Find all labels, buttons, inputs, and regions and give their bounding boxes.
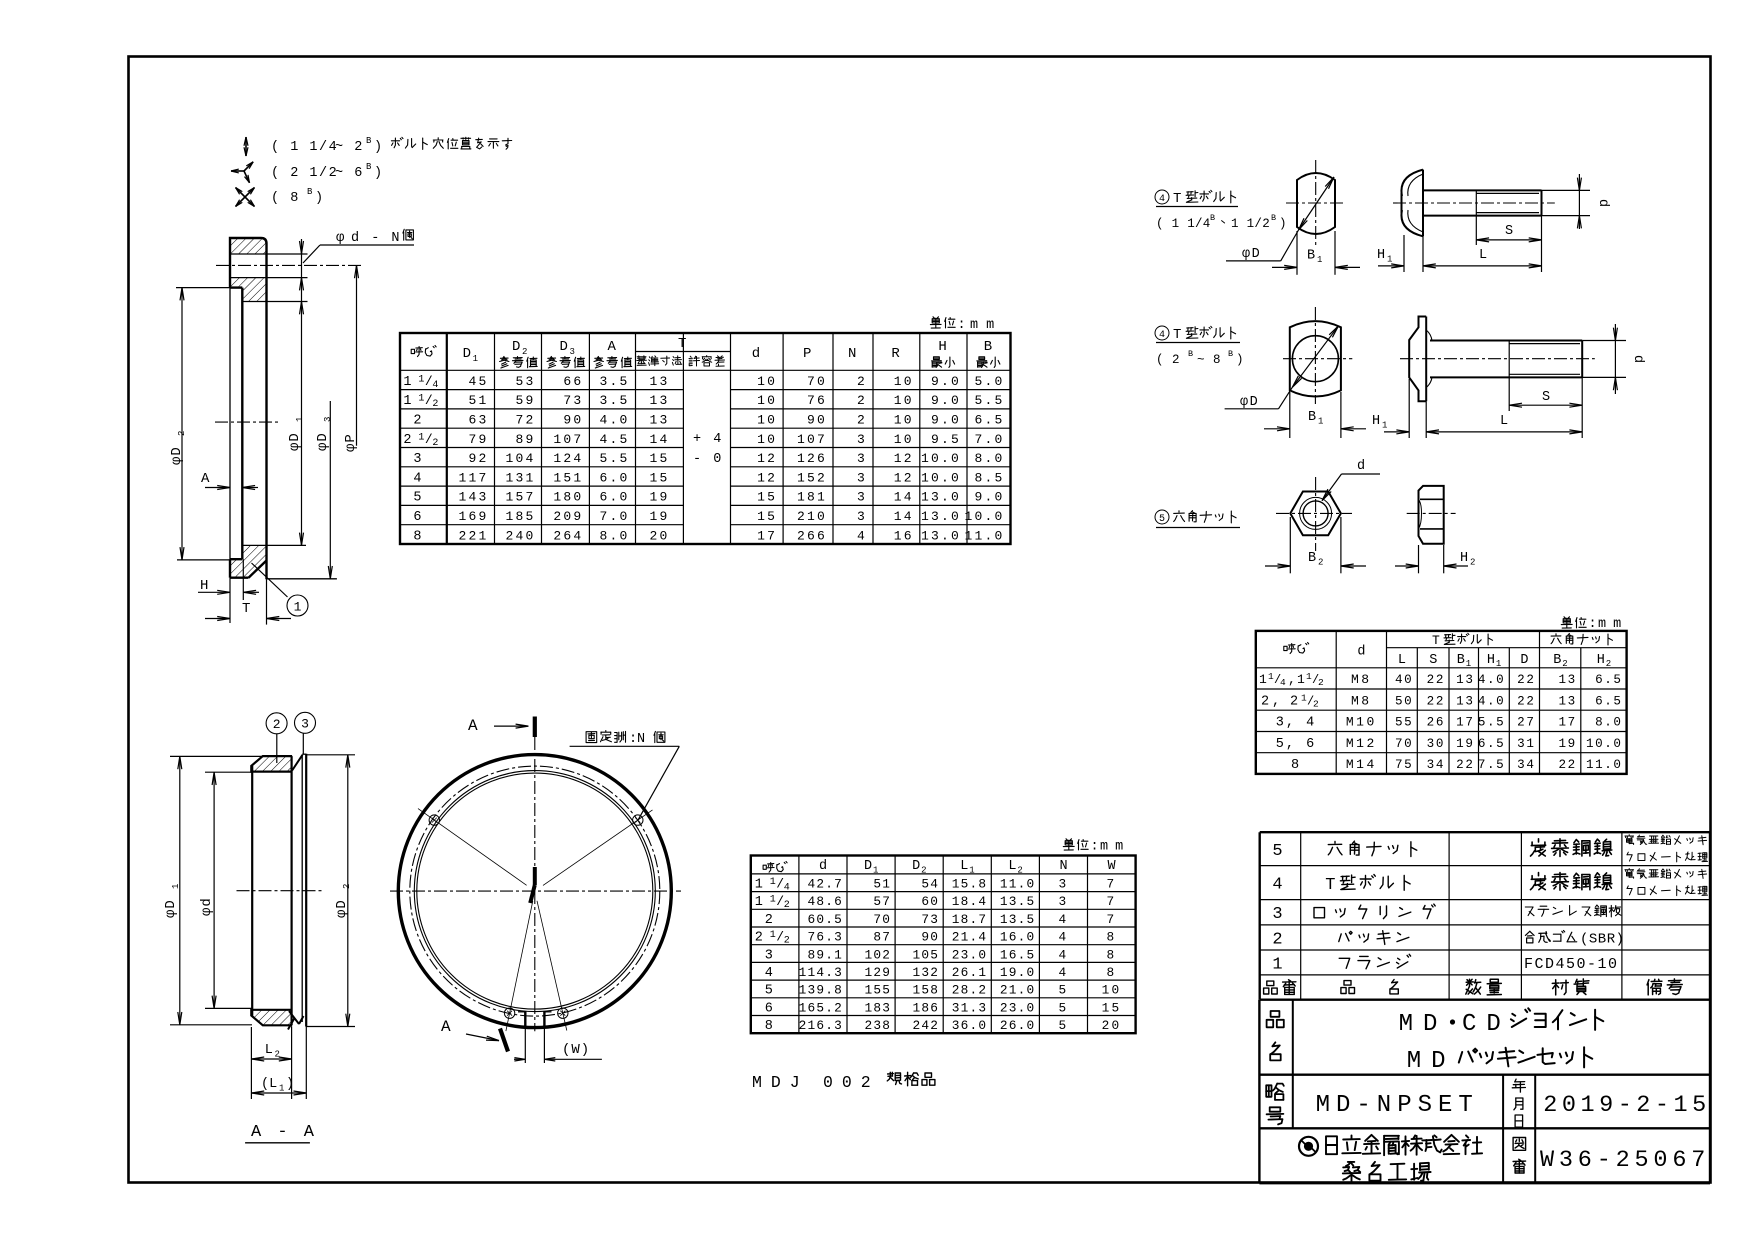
- svg-text:50: 50: [1395, 694, 1413, 708]
- svg-text:L: L: [1479, 248, 1487, 263]
- svg-text:5: 5: [1059, 1018, 1069, 1033]
- svg-text:N: N: [848, 346, 856, 362]
- svg-text:3: 3: [1272, 905, 1282, 924]
- svg-text:2: 2: [1606, 659, 1611, 669]
- svg-text:5: 5: [1059, 983, 1069, 998]
- svg-text:4: 4: [1159, 194, 1165, 205]
- svg-text:2: 2: [784, 936, 790, 947]
- svg-text:( 1 1/4: ( 1 1/4: [271, 140, 338, 155]
- svg-text:9.0: 9.0: [931, 413, 961, 428]
- svg-text:22: 22: [1517, 673, 1535, 687]
- svg-text:S: S: [1429, 653, 1437, 668]
- svg-text:19.0: 19.0: [1000, 965, 1036, 980]
- svg-text:9.5: 9.5: [931, 432, 961, 447]
- svg-text:S: S: [1542, 390, 1550, 405]
- svg-text:60.5: 60.5: [807, 912, 843, 927]
- svg-text:3: 3: [323, 417, 333, 422]
- svg-text:70: 70: [807, 374, 827, 389]
- svg-text:2: 2: [522, 347, 527, 357]
- svg-text:157: 157: [505, 490, 535, 505]
- svg-text:40: 40: [1395, 673, 1413, 687]
- svg-text:~ 2: ~ 2: [335, 140, 364, 155]
- svg-text:8: 8: [1107, 930, 1117, 945]
- svg-text:): ): [286, 1077, 294, 1092]
- svg-text:1: 1: [1318, 417, 1323, 427]
- svg-text:1: 1: [873, 866, 878, 876]
- svg-text:26.0: 26.0: [1000, 1018, 1036, 1033]
- svg-text:13.0: 13.0: [921, 528, 961, 543]
- svg-text:B: B: [366, 136, 372, 146]
- svg-text:): ): [1279, 217, 1287, 231]
- svg-text:): ): [315, 191, 323, 206]
- svg-text:26.1: 26.1: [952, 965, 988, 980]
- svg-text:73: 73: [921, 912, 939, 927]
- svg-text:10: 10: [894, 374, 914, 389]
- svg-text:( 2: ( 2: [1156, 353, 1180, 367]
- svg-text:4.0: 4.0: [1478, 694, 1505, 708]
- svg-text:H: H: [1460, 551, 1468, 566]
- svg-text:7.5: 7.5: [1478, 758, 1505, 772]
- svg-text:27: 27: [1517, 716, 1535, 730]
- svg-text:17: 17: [1558, 716, 1576, 730]
- svg-text:B: B: [307, 187, 313, 197]
- svg-text:8: 8: [1107, 947, 1117, 962]
- svg-text:7.0: 7.0: [599, 509, 629, 524]
- svg-text:7.0: 7.0: [974, 432, 1004, 447]
- svg-text:117: 117: [458, 470, 488, 485]
- svg-text:2: 2: [432, 438, 438, 449]
- svg-text:6: 6: [765, 1001, 777, 1016]
- svg-text:20: 20: [649, 528, 669, 543]
- svg-text:D: D: [1520, 653, 1528, 668]
- svg-text:B: B: [1228, 349, 1233, 359]
- svg-text:1: 1: [418, 374, 424, 385]
- svg-text:210: 210: [797, 509, 827, 524]
- svg-text:φ: φ: [336, 230, 345, 246]
- svg-text:92: 92: [468, 451, 488, 466]
- svg-text:19: 19: [1558, 737, 1576, 751]
- svg-text:221: 221: [458, 528, 488, 543]
- svg-text:φd: φd: [199, 897, 215, 916]
- svg-text:4: 4: [413, 471, 425, 486]
- svg-text:180: 180: [553, 490, 583, 505]
- svg-text:12: 12: [757, 451, 777, 466]
- svg-text:2: 2: [403, 433, 414, 448]
- svg-text:T: T: [1173, 327, 1181, 343]
- svg-text:6.5: 6.5: [974, 413, 1004, 428]
- svg-text:216.3: 216.3: [799, 1018, 843, 1033]
- svg-text:10.0: 10.0: [1586, 737, 1623, 751]
- svg-text:8: 8: [1291, 758, 1301, 773]
- svg-text:2: 2: [273, 717, 281, 732]
- svg-text:4: 4: [432, 380, 438, 391]
- svg-text:75: 75: [1395, 758, 1413, 772]
- svg-text:7: 7: [1107, 894, 1117, 909]
- svg-text:H: H: [1377, 248, 1385, 263]
- svg-text:19: 19: [649, 490, 669, 505]
- svg-text:H: H: [1597, 653, 1605, 668]
- svg-text:242: 242: [913, 1018, 940, 1033]
- svg-text:2: 2: [1017, 866, 1022, 876]
- svg-text:79: 79: [468, 432, 488, 447]
- svg-text:102: 102: [864, 947, 891, 962]
- svg-text:13: 13: [1456, 694, 1474, 708]
- svg-text:W: W: [1108, 859, 1117, 874]
- svg-text:3: 3: [857, 509, 867, 524]
- svg-text:34: 34: [1517, 758, 1535, 772]
- svg-text:d: d: [1630, 355, 1645, 363]
- svg-text:B: B: [1271, 213, 1276, 223]
- svg-text:d: d: [1595, 199, 1610, 207]
- svg-text:11.0: 11.0: [964, 528, 1004, 543]
- svg-text:6.0: 6.0: [599, 490, 629, 505]
- svg-text:T: T: [1432, 633, 1440, 648]
- svg-text:D: D: [560, 339, 568, 355]
- svg-text:30: 30: [1427, 737, 1445, 751]
- svg-text:2: 2: [342, 884, 352, 889]
- svg-text:L: L: [1398, 653, 1406, 668]
- svg-text:28.2: 28.2: [952, 983, 988, 998]
- svg-text:D: D: [864, 859, 872, 874]
- svg-text:23.0: 23.0: [952, 947, 988, 962]
- svg-text:31.3: 31.3: [952, 1000, 988, 1015]
- svg-text:10: 10: [757, 432, 777, 447]
- svg-text:89: 89: [515, 432, 535, 447]
- svg-text:3: 3: [857, 451, 867, 466]
- svg-text:3: 3: [301, 717, 309, 732]
- svg-text:W36-25067: W36-25067: [1540, 1147, 1710, 1174]
- svg-text:): ): [1236, 353, 1244, 367]
- svg-text:5: 5: [1059, 1000, 1069, 1015]
- svg-text:mm: mm: [1100, 840, 1130, 855]
- svg-text:4: 4: [1280, 677, 1286, 688]
- svg-text:4.0: 4.0: [599, 413, 629, 428]
- svg-text:8.0: 8.0: [1595, 716, 1622, 730]
- svg-text:13.5: 13.5: [1000, 894, 1036, 909]
- svg-text:240: 240: [505, 528, 535, 543]
- svg-text:8.0: 8.0: [974, 451, 1004, 466]
- svg-text:2: 2: [857, 374, 867, 389]
- svg-text:76.3: 76.3: [807, 930, 843, 945]
- svg-text:T: T: [242, 601, 250, 617]
- svg-text:132: 132: [913, 965, 940, 980]
- svg-text:14: 14: [894, 490, 914, 505]
- svg-text:20: 20: [1102, 1018, 1122, 1033]
- svg-text:2: 2: [1261, 694, 1269, 709]
- svg-text:3: 3: [857, 470, 867, 485]
- svg-text:66: 66: [563, 374, 583, 389]
- svg-text:~ 6: ~ 6: [335, 166, 364, 181]
- svg-text:5.5: 5.5: [974, 393, 1004, 408]
- svg-text:16.0: 16.0: [1000, 930, 1036, 945]
- svg-text:51: 51: [468, 393, 488, 408]
- svg-text:155: 155: [864, 983, 891, 998]
- svg-text:L: L: [960, 859, 968, 874]
- svg-text:107: 107: [553, 432, 583, 447]
- svg-text:10: 10: [894, 432, 914, 447]
- svg-text:M12: M12: [1346, 736, 1377, 751]
- svg-text:10.0: 10.0: [921, 451, 961, 466]
- svg-text:4: 4: [784, 883, 790, 894]
- svg-text:φP: φP: [343, 433, 359, 452]
- svg-text:3: 3: [413, 452, 425, 467]
- svg-text:( 2 1/2: ( 2 1/2: [271, 166, 338, 181]
- svg-text:3: 3: [1059, 877, 1069, 892]
- svg-text:T: T: [678, 336, 686, 352]
- svg-text:A: A: [201, 471, 210, 487]
- svg-text:1: 1: [403, 375, 414, 390]
- svg-text:3: 3: [857, 432, 867, 447]
- svg-text:8.0: 8.0: [599, 528, 629, 543]
- svg-text:22: 22: [1517, 694, 1535, 708]
- svg-text:209: 209: [553, 509, 583, 524]
- svg-text:1: 1: [403, 394, 414, 409]
- svg-text:d: d: [819, 859, 827, 874]
- svg-text:87: 87: [873, 930, 891, 945]
- svg-text:(SBR): (SBR): [1580, 932, 1625, 948]
- svg-text:70: 70: [1395, 737, 1413, 751]
- svg-text:2: 2: [432, 399, 438, 410]
- svg-text:1: 1: [770, 930, 776, 941]
- svg-text:1: 1: [171, 884, 181, 889]
- svg-text:T: T: [1173, 191, 1181, 207]
- svg-text:B: B: [1307, 249, 1315, 264]
- svg-text:51: 51: [873, 877, 891, 892]
- svg-text:1: 1: [1272, 956, 1282, 975]
- svg-text:90: 90: [921, 930, 939, 945]
- svg-text:MD: MD: [1399, 1011, 1448, 1038]
- svg-text:126: 126: [797, 451, 827, 466]
- svg-text:8: 8: [413, 529, 425, 544]
- svg-text:D: D: [912, 859, 920, 874]
- svg-text:15: 15: [1102, 1000, 1122, 1015]
- svg-text:14: 14: [649, 432, 669, 447]
- svg-text:1: 1: [418, 432, 424, 443]
- svg-text:φD: φD: [315, 432, 331, 451]
- svg-text:54: 54: [921, 877, 939, 892]
- svg-text:FCD450-10: FCD450-10: [1524, 956, 1619, 973]
- svg-text:2: 2: [413, 414, 425, 429]
- svg-text:36.0: 36.0: [952, 1018, 988, 1033]
- svg-text:N: N: [1060, 859, 1068, 874]
- svg-text:1: 1: [473, 354, 478, 364]
- svg-text:M8: M8: [1351, 672, 1372, 687]
- svg-text:mm: mm: [970, 318, 1002, 333]
- svg-text:22: 22: [1456, 758, 1474, 772]
- svg-text:φD: φD: [334, 899, 350, 918]
- svg-text::: :: [958, 318, 966, 333]
- svg-text:72: 72: [515, 413, 535, 428]
- svg-text:10: 10: [757, 393, 777, 408]
- svg-text:1: 1: [1297, 672, 1305, 687]
- svg-text:158: 158: [913, 983, 940, 998]
- svg-text:31: 31: [1517, 737, 1535, 751]
- svg-text:B: B: [1553, 653, 1561, 668]
- svg-text:3.5: 3.5: [599, 374, 629, 389]
- svg-text:2019-2-15: 2019-2-15: [1543, 1092, 1710, 1119]
- svg-text:16.5: 16.5: [1000, 947, 1036, 962]
- svg-text:1: 1: [1496, 659, 1501, 669]
- svg-text:22: 22: [1427, 673, 1445, 687]
- svg-text:8: 8: [765, 1019, 777, 1034]
- svg-text:21.0: 21.0: [1000, 983, 1036, 998]
- svg-text:2: 2: [1318, 677, 1324, 688]
- svg-text:11.0: 11.0: [1000, 877, 1036, 892]
- svg-text:152: 152: [797, 470, 827, 485]
- svg-text:(L: (L: [261, 1077, 277, 1092]
- svg-text:8: 8: [1107, 965, 1117, 980]
- svg-text:15: 15: [757, 509, 777, 524]
- svg-text:A: A: [608, 339, 617, 355]
- svg-text:59: 59: [515, 393, 535, 408]
- svg-text:21.4: 21.4: [952, 930, 988, 945]
- svg-text:A: A: [468, 717, 478, 735]
- svg-text:12: 12: [757, 470, 777, 485]
- svg-text:d: d: [1357, 645, 1365, 660]
- svg-text:4: 4: [1059, 947, 1069, 962]
- svg-text:23.0: 23.0: [1000, 1000, 1036, 1015]
- svg-text:10: 10: [894, 413, 914, 428]
- svg-text:H: H: [200, 578, 208, 594]
- svg-text:4.0: 4.0: [1478, 673, 1505, 687]
- svg-text:1: 1: [1259, 672, 1267, 687]
- svg-text:22: 22: [1558, 758, 1576, 772]
- svg-text:15: 15: [649, 451, 669, 466]
- svg-text:4: 4: [1059, 930, 1069, 945]
- svg-text:D: D: [512, 339, 520, 355]
- svg-text:1: 1: [770, 877, 776, 888]
- svg-text:34: 34: [1427, 758, 1445, 772]
- svg-text:90: 90: [807, 413, 827, 428]
- svg-text:φD: φD: [1240, 395, 1259, 410]
- svg-text:H: H: [1372, 414, 1380, 429]
- svg-text:5: 5: [1272, 842, 1282, 861]
- svg-text:1: 1: [1382, 421, 1387, 431]
- svg-text:CD: CD: [1462, 1011, 1511, 1038]
- svg-text:76: 76: [807, 393, 827, 408]
- svg-text:B: B: [984, 339, 992, 355]
- svg-text:- 0: - 0: [693, 452, 723, 467]
- svg-text:4: 4: [1272, 876, 1282, 895]
- svg-text:2: 2: [1470, 558, 1475, 568]
- svg-text:5, 6: 5, 6: [1276, 737, 1316, 752]
- svg-text:169: 169: [458, 509, 488, 524]
- svg-text:B: B: [1308, 410, 1316, 425]
- svg-text:3: 3: [857, 490, 867, 505]
- svg-text:φD: φD: [1242, 247, 1261, 262]
- svg-text:5.5: 5.5: [1478, 716, 1505, 730]
- svg-text:45: 45: [468, 374, 488, 389]
- svg-text:18.7: 18.7: [952, 912, 988, 927]
- svg-text:151: 151: [553, 470, 583, 485]
- svg-text:H: H: [938, 339, 946, 355]
- svg-text:d: d: [752, 346, 760, 362]
- svg-text:2: 2: [765, 913, 777, 928]
- svg-text:9.0: 9.0: [931, 374, 961, 389]
- svg-text:13: 13: [1558, 673, 1576, 687]
- svg-text:MD-NPSET: MD-NPSET: [1316, 1092, 1479, 1119]
- svg-text:10: 10: [757, 374, 777, 389]
- svg-text:T: T: [1325, 876, 1335, 895]
- svg-text:10: 10: [1102, 983, 1122, 998]
- svg-text:22: 22: [1427, 694, 1445, 708]
- svg-text:2: 2: [1318, 558, 1323, 568]
- svg-text:L: L: [1500, 414, 1508, 429]
- svg-text:10: 10: [757, 413, 777, 428]
- svg-text:55: 55: [1395, 716, 1413, 730]
- svg-text:7: 7: [1107, 877, 1117, 892]
- svg-text:9.0: 9.0: [931, 393, 961, 408]
- svg-text:6.5: 6.5: [1595, 673, 1622, 687]
- svg-text:264: 264: [553, 528, 583, 543]
- svg-text:12: 12: [894, 451, 914, 466]
- svg-text:1: 1: [1466, 659, 1471, 669]
- svg-text:131: 131: [505, 470, 535, 485]
- svg-text:( 8: ( 8: [271, 191, 300, 206]
- svg-text:+ 4: + 4: [693, 432, 723, 447]
- svg-text:13: 13: [649, 393, 669, 408]
- svg-text:105: 105: [913, 947, 940, 962]
- svg-text:1: 1: [770, 895, 776, 906]
- svg-text:5: 5: [765, 984, 777, 999]
- svg-text:19: 19: [649, 509, 669, 524]
- svg-text:M10: M10: [1346, 715, 1377, 730]
- svg-text:2: 2: [275, 1050, 280, 1060]
- svg-text:13: 13: [649, 374, 669, 389]
- svg-text:129: 129: [864, 965, 891, 980]
- svg-text:6.5: 6.5: [1478, 737, 1505, 751]
- svg-text:70: 70: [873, 912, 891, 927]
- svg-text:2: 2: [1272, 931, 1282, 950]
- svg-text:4: 4: [1159, 330, 1165, 341]
- svg-text:19: 19: [1456, 737, 1474, 751]
- svg-text:266: 266: [797, 528, 827, 543]
- svg-text:1: 1: [294, 600, 302, 615]
- svg-text:002: 002: [823, 1073, 880, 1092]
- svg-text:H: H: [1487, 653, 1495, 668]
- svg-text:5.5: 5.5: [599, 451, 629, 466]
- svg-text:13.0: 13.0: [921, 490, 961, 505]
- svg-text:B: B: [1457, 653, 1465, 668]
- svg-text:MDJ: MDJ: [752, 1073, 809, 1092]
- svg-text:57: 57: [873, 894, 891, 909]
- svg-text:B: B: [366, 162, 372, 172]
- svg-text:12: 12: [894, 470, 914, 485]
- svg-text:13.5: 13.5: [1000, 912, 1036, 927]
- svg-text:φD: φD: [287, 432, 303, 451]
- svg-text:124: 124: [553, 451, 583, 466]
- svg-text:2: 2: [1562, 659, 1567, 669]
- svg-text:4: 4: [1059, 912, 1069, 927]
- svg-text:B: B: [1210, 213, 1215, 223]
- svg-text:8.5: 8.5: [974, 470, 1004, 485]
- svg-text:15: 15: [757, 490, 777, 505]
- svg-text:,: ,: [1272, 694, 1280, 709]
- svg-text:11.0: 11.0: [1586, 758, 1623, 772]
- svg-text:17: 17: [1456, 716, 1474, 730]
- svg-text:13: 13: [1456, 673, 1474, 687]
- svg-text:13: 13: [649, 413, 669, 428]
- svg-text:9.0: 9.0: [974, 490, 1004, 505]
- svg-text:φD: φD: [163, 899, 179, 918]
- svg-text:2: 2: [857, 393, 867, 408]
- svg-text:89.1: 89.1: [807, 947, 843, 962]
- svg-text:26: 26: [1427, 716, 1445, 730]
- svg-text::: :: [629, 732, 637, 747]
- svg-text:L: L: [265, 1043, 273, 1058]
- svg-text:P: P: [803, 346, 811, 362]
- svg-text:2: 2: [1313, 698, 1319, 709]
